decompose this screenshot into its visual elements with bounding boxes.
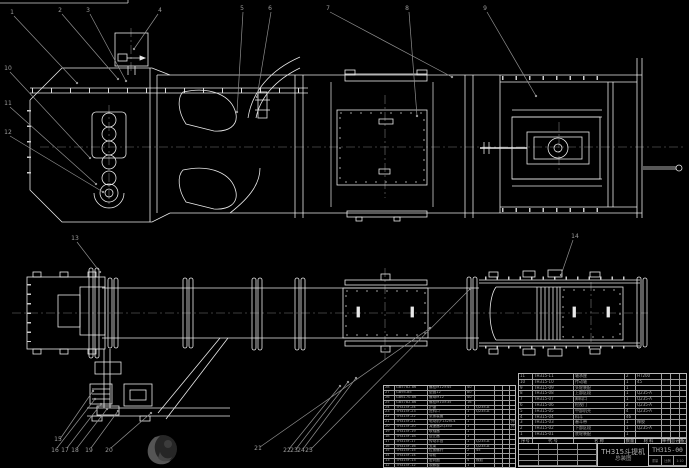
bom-cell: 1 (465, 410, 474, 414)
bom-cell: 上部区段 (573, 391, 624, 396)
bom-cell (502, 425, 509, 429)
bom-cell: TH315F-24 (394, 406, 427, 410)
bom-cell: 17 (384, 440, 394, 444)
head-section (480, 58, 682, 218)
bom-cell: 1 (465, 464, 474, 468)
bom-cell: TH315-05 (532, 409, 573, 414)
bom-cell: Q235-A (474, 445, 494, 449)
bom-cell: 1 (465, 425, 474, 429)
callout-number: 12 (4, 129, 12, 136)
bom-table-main: 11TH315-11轴承座2HT20010TH315-10传动轴1459TH31… (518, 373, 687, 444)
bom-cell: 20 (384, 425, 394, 429)
bom-cell: 1 (624, 397, 635, 402)
bom-cell: 13 (384, 459, 394, 463)
bom-cell (670, 391, 679, 396)
bom-cell: GB6170-86 (394, 396, 427, 400)
bom-row: 12TH315F-12观察窗1 (384, 464, 515, 468)
callout-number: 3 (86, 7, 90, 14)
signature-grid (519, 444, 598, 466)
bom-cell (502, 464, 509, 468)
bom-cell: Q235-A (474, 410, 494, 414)
bom-cell (635, 386, 661, 391)
bom-cell: 7 (519, 397, 532, 402)
bom-cell: TH315F-14 (394, 454, 427, 458)
bom-cell (509, 415, 515, 419)
bom-cell: 45 (635, 380, 661, 385)
bom-cell (661, 380, 670, 385)
bom-cell: 张紧装置 (427, 415, 465, 419)
bom-cell: TH315-02 (532, 426, 573, 431)
bom-cell: TH315-04 (532, 415, 573, 420)
bom-cell (661, 409, 670, 414)
bom-cell: 18 (384, 435, 394, 439)
title-block: TH315斗提机 总装图 TH315-00 重量比例1:10 (518, 443, 687, 467)
bom-cell: 垫圈12 (427, 391, 465, 395)
bom-cell: TH315F-21 (394, 420, 427, 424)
bom-cell: TH315-06 (532, 403, 573, 408)
bom-cell (679, 432, 686, 437)
bom-cell (509, 464, 515, 468)
bom-cell: 比例 (661, 456, 673, 465)
bom-cell: 1 (624, 420, 635, 425)
bom-cell (661, 391, 670, 396)
drawing-number-block: TH315-00 重量比例1:10 (649, 444, 686, 466)
bom-cell (494, 445, 502, 449)
callout-number: 19 (85, 447, 93, 454)
bom-cell: TH315F-15 (394, 449, 427, 453)
bom-cell: Q235-A (635, 426, 661, 431)
bom-cell: 16 (465, 401, 474, 405)
bom-cell (494, 430, 502, 434)
bom-cell: 23 (384, 410, 394, 414)
bom-cell (679, 415, 686, 420)
bom-cell (494, 386, 502, 390)
bom-cell: 1 (519, 432, 532, 437)
bom-cell (494, 440, 502, 444)
bom-cell (509, 459, 515, 463)
bom-cell (661, 426, 670, 431)
bom-cell (494, 454, 502, 458)
bom-cell (502, 415, 509, 419)
bom-cell (670, 386, 679, 391)
bom-cell (494, 406, 502, 410)
bom-cell: 4 (519, 415, 532, 420)
bom-cell: 2 (519, 426, 532, 431)
bom-cell: TH315F-20 (394, 425, 427, 429)
bom-cell: 2 (465, 445, 474, 449)
bom-cell (661, 403, 670, 408)
bom-cell (494, 425, 502, 429)
bom-cell: TH315F-17 (394, 440, 427, 444)
bom-cell (679, 391, 686, 396)
bom-cell (509, 410, 515, 414)
bom-cell (494, 410, 502, 414)
bom-cell: 轴承座 (573, 374, 624, 379)
bom-cell: 传动平台 (427, 440, 465, 444)
bom-cell (474, 425, 494, 429)
bom-cell: GB95-85 (394, 391, 427, 395)
bom-cell (670, 380, 679, 385)
bom-cell: 28 (384, 386, 394, 390)
bom-cell: 9 (519, 386, 532, 391)
bom-cell (670, 397, 679, 402)
bom-cell (502, 440, 509, 444)
bom-cell: 4 (624, 409, 635, 414)
bom-cell: 1 (465, 406, 474, 410)
callout-number: 9 (483, 5, 487, 12)
bom-cell: 头轮装配 (573, 386, 624, 391)
callout-number: 7 (326, 5, 330, 12)
bom-cell: 1 (465, 420, 474, 424)
bom-cell: 螺栓M12×45 (427, 386, 465, 390)
bom-cell: TH315F-16 (394, 445, 427, 449)
bom-cell: 1 (465, 415, 474, 419)
bom-cell: 护罩 (427, 406, 465, 410)
bom-cell: 1 (465, 430, 474, 434)
bom-cell: HT200 (635, 374, 661, 379)
signature-cell (558, 461, 578, 467)
callout-number: 25 (305, 447, 313, 454)
signature-cell (578, 461, 598, 467)
bom-cell: 底轮装配 (573, 432, 624, 437)
bom-cell: 2 (624, 374, 635, 379)
bom-cell: 1 (624, 391, 635, 396)
bom-cell (502, 420, 509, 424)
callout-number: 1 (10, 9, 14, 16)
callout-number: 5 (240, 5, 244, 12)
bom-cell (502, 445, 509, 449)
bom-cell (509, 445, 515, 449)
bom-row: 重量比例1:10 (649, 455, 686, 466)
callout-number: 16 (51, 447, 59, 454)
bom-cell: 减速器ZQ350 (427, 425, 465, 429)
bom-cell (679, 420, 686, 425)
bom-cell: 14 (384, 454, 394, 458)
bom-cell: TH315-03 (532, 420, 573, 425)
bom-cell: 40 (465, 396, 474, 400)
bom-cell (474, 435, 494, 439)
bom-cell: 27 (384, 391, 394, 395)
boot-section (29, 68, 308, 222)
bom-cell: 1 (624, 386, 635, 391)
takeup-detail-box (115, 33, 148, 75)
bom-cell (509, 386, 515, 390)
bom-cell (502, 401, 509, 405)
bom-cell (661, 386, 670, 391)
bom-cell (661, 432, 670, 437)
bom-cell (509, 440, 515, 444)
bom-cell: 46 (624, 415, 635, 420)
bom-cell (661, 420, 670, 425)
bom-cell: TH315-11 (532, 374, 573, 379)
scale-strip: 重量比例1:10 (649, 455, 686, 466)
bom-cell: 26 (384, 396, 394, 400)
bom-cell (494, 449, 502, 453)
bom-cell (474, 454, 494, 458)
bom-cell: 1 (624, 426, 635, 431)
bom-cell (679, 403, 686, 408)
bom-cell: Q235-A (474, 440, 494, 444)
bom-cell: Q235-A (635, 391, 661, 396)
bom-cell: 逆止器 (427, 435, 465, 439)
bom-cell: 1 (465, 440, 474, 444)
bom-cell: 橡胶 (635, 420, 661, 425)
callout-number: 11 (4, 100, 12, 107)
bom-cell: 电动机Y132M-4 (427, 420, 465, 424)
bom-cell (679, 380, 686, 385)
bom-cell (679, 397, 686, 402)
signature-cell (519, 461, 539, 467)
bom-cell: 12 (384, 464, 394, 468)
bom-cell: Q235-A (474, 406, 494, 410)
bom-cell (670, 432, 679, 437)
bom-cell: GB5782-86 (394, 386, 427, 390)
signature-cell (539, 461, 559, 467)
bom-cell (502, 449, 509, 453)
bom-cell: 导轮 (427, 454, 465, 458)
bom-cell (494, 459, 502, 463)
bom-cell: 进料口 (427, 410, 465, 414)
bom-cell: 25 (384, 401, 394, 405)
bom-cell: GB5782-86 (394, 401, 427, 405)
frame-corner (0, 0, 128, 3)
bom-cell: TH315F-12 (394, 464, 427, 468)
bom-cell: TH315-01 (532, 432, 573, 437)
bom-cell: 密封圈 (427, 459, 465, 463)
bom-cell: 下部区段 (573, 426, 624, 431)
bom-cell (474, 464, 494, 468)
bom-cell: 外购 (509, 420, 515, 424)
bom-cell (502, 406, 509, 410)
front-view (29, 28, 686, 222)
bom-cell: 10 (519, 380, 532, 385)
bom-cell: TH315F-13 (394, 459, 427, 463)
bom-cell (509, 401, 515, 405)
bom-cell: 重量 (649, 456, 661, 465)
bom-cell (474, 430, 494, 434)
callout-number: 20 (105, 447, 113, 454)
bom-cell (670, 415, 679, 420)
bom-cell (474, 386, 494, 390)
bom-cell: TH315F-18 (394, 435, 427, 439)
bom-cell (509, 454, 515, 458)
bom-cell: 2 (465, 449, 474, 453)
bom-cell: 螺母M12 (427, 396, 465, 400)
bom-cell (679, 386, 686, 391)
bom-cell: 15 (384, 449, 394, 453)
bom-cell (679, 409, 686, 414)
bom-cell: TH315F-19 (394, 430, 427, 434)
bom-cell: TH315-10 (532, 380, 573, 385)
buckets-chute (179, 57, 300, 213)
bom-cell: TH315-07 (532, 397, 573, 402)
bom-cell: Q235-A (635, 409, 661, 414)
bom-cell (494, 420, 502, 424)
cad-drawing-canvas: 1 2 3 4 5 6 7 8 9 10 11 12 13 14 15 16 1… (0, 0, 689, 468)
bom-cell (670, 374, 679, 379)
bom-cell (474, 415, 494, 419)
bom-cell (494, 396, 502, 400)
bom-cell: TH315-08 (532, 391, 573, 396)
callout-number: 4 (158, 7, 162, 14)
bom-cell (502, 435, 509, 439)
bom-cell: 联轴器 (427, 430, 465, 434)
bom-cell: 1:10 (673, 456, 686, 465)
bom-cell (679, 426, 686, 431)
callout-number: 24 (297, 447, 305, 454)
drawing-title: TH315斗提机 (601, 448, 645, 456)
bom-cell (502, 430, 509, 434)
drawing-number: TH315-00 (649, 444, 686, 455)
callout-number: 2 (58, 7, 62, 14)
bom-cell (635, 432, 661, 437)
bom-cell (494, 435, 502, 439)
bom-cell (509, 435, 515, 439)
callout-leaders (10, 12, 573, 449)
bom-cell: 外购 (509, 425, 515, 429)
bom-cell (670, 420, 679, 425)
front-centerlines (40, 28, 686, 208)
drawing-subtitle: 总装图 (615, 456, 632, 462)
bom-cell: 21 (384, 420, 394, 424)
bom-cell (635, 415, 661, 420)
bom-cell: TH315F-22 (394, 415, 427, 419)
bom-cell: 观察窗 (427, 464, 465, 468)
plan-drive-unit (87, 338, 230, 421)
title-cell: TH315斗提机 总装图 (598, 444, 649, 466)
callout-number: 6 (268, 5, 272, 12)
callout-number: 8 (405, 5, 409, 12)
bom-cell: 40 (465, 386, 474, 390)
bom-cell: 4 (465, 459, 474, 463)
bom-cell (661, 415, 670, 420)
bom-cell (502, 454, 509, 458)
bom-cell (474, 391, 494, 395)
bom-cell (670, 409, 679, 414)
plan-duct (102, 278, 479, 350)
bom-cell (502, 459, 509, 463)
bom-cell: TH315-09 (532, 386, 573, 391)
bom-cell (494, 415, 502, 419)
bom-cell: 22 (384, 415, 394, 419)
bom-cell (509, 449, 515, 453)
bom-cell: 8 (519, 391, 532, 396)
bom-table-continuation: 28GB5782-86螺栓M12×454027GB95-85垫圈128026GB… (383, 385, 516, 468)
callout-number: 15 (54, 436, 62, 443)
bom-cell: 5 (519, 409, 532, 414)
bom-cell (670, 403, 679, 408)
bom-cell: 11 (519, 374, 532, 379)
bom-cell (502, 391, 509, 395)
bom-cell (502, 396, 509, 400)
bom-table-body: 11TH315-11轴承座2HT20010TH315-10传动轴1459TH31… (519, 374, 686, 438)
bom-cell: 传动轴 (573, 380, 624, 385)
callout-number: 14 (571, 233, 579, 240)
inspection-door-front (337, 110, 427, 185)
bom-cell: 45 (474, 449, 494, 453)
bom-cell: 19 (384, 430, 394, 434)
bom-cell (509, 406, 515, 410)
callout-number: 13 (71, 235, 79, 242)
bom-cell (474, 420, 494, 424)
bom-cell: 中部机壳 (573, 409, 624, 414)
bom-cell (509, 396, 515, 400)
bom-cell (679, 374, 686, 379)
bom-cell: 80 (465, 391, 474, 395)
bom-cell: 6 (519, 403, 532, 408)
callout-number: 21 (254, 445, 262, 452)
bom-cell (670, 426, 679, 431)
bom-cell (509, 430, 515, 434)
bom-cell: 检视门 (573, 403, 624, 408)
bom-cell: 卸料口 (573, 397, 624, 402)
bom-cell: 24 (384, 406, 394, 410)
bom-cell (661, 397, 670, 402)
bom-cell: 16 (384, 445, 394, 449)
bom-cell (474, 401, 494, 405)
bom-cell: 2 (624, 403, 635, 408)
bom-cell (494, 464, 502, 468)
bom-cell: 2 (465, 454, 474, 458)
bom-cell (509, 391, 515, 395)
callout-number: 10 (4, 65, 12, 72)
bom-cell (661, 374, 670, 379)
callout-number: 18 (71, 447, 79, 454)
bom-cell: 料斗 (573, 415, 624, 420)
bom-cell: 1 (624, 380, 635, 385)
bom-cell: 畚斗带 (573, 420, 624, 425)
bom-cell: 1 (624, 432, 635, 437)
bom-cell: 螺栓M10×35 (427, 401, 465, 405)
bom-cell: 3 (519, 420, 532, 425)
watermark-logo (148, 435, 177, 464)
bom-cell: 1 (465, 435, 474, 439)
bom-cell (502, 410, 509, 414)
bom-cell (494, 391, 502, 395)
bom-cell (474, 396, 494, 400)
bom-cell: Q235-A (635, 397, 661, 402)
bom-cell (502, 386, 509, 390)
bom-cell: 橡胶 (474, 459, 494, 463)
callout-number: 17 (61, 447, 69, 454)
bom-cell: 拉紧螺杆 (427, 449, 465, 453)
bom-cell: TH315F-23 (394, 410, 427, 414)
bom-cell (494, 401, 502, 405)
bom-cell: 支架 (427, 445, 465, 449)
bom-cell: Q235-A (635, 403, 661, 408)
